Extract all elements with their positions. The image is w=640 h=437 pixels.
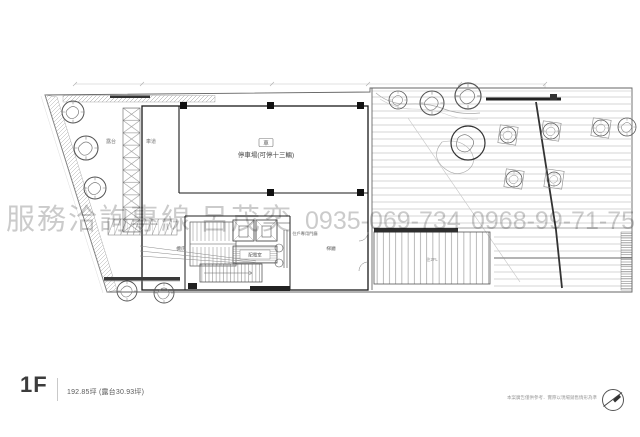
footnote: 本案廣告僅供參考．實際以現場銷售情形為準 [507,390,624,411]
terrace-label: 露台 [106,138,116,145]
garden-stair: 往2FL [374,228,490,284]
page: 服務洽詢專線 呂茂奕 0935-069-734 0968-99-71-75 [0,0,640,437]
elevator-shaft [233,220,254,241]
garage-label: 停車場(可停十三輛) [238,150,294,159]
left-planter [45,95,117,292]
floor-plan: 往2FL 露台 車道 車 停車場(可停十三輛) [0,0,640,437]
disclaimer-text: 本案廣告僅供參考．實際以現場銷售情形為準 [507,394,597,401]
elevator-shaft [256,220,277,241]
elevator-lobby-label: 梯廳 [326,245,336,252]
bottom-planter [104,277,180,281]
footer-divider [57,378,58,401]
canopy-band [63,96,215,103]
driveway-label: 車道 [146,138,156,145]
garage-icon: 車 [263,139,269,147]
area-text: 192.85坪 (露台30.93坪) [67,387,144,397]
entry-lobby-label: 住戶專用門廳 [292,230,318,237]
compass-icon [603,390,624,411]
floor-label: 1F [20,372,48,398]
stair-note-label: 往2FL [426,256,438,262]
generator-room-label: 配電室 [248,252,262,259]
